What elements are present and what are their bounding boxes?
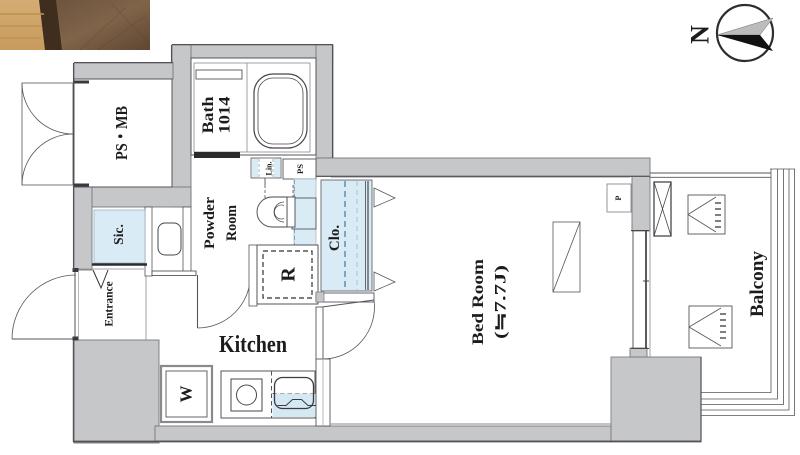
svg-text:W: W <box>177 386 196 403</box>
svg-text:Clo.: Clo. <box>327 225 343 252</box>
svg-text:PowderRoom: PowderRoom <box>202 196 240 249</box>
svg-text:N: N <box>685 25 714 44</box>
svg-text:R: R <box>278 267 300 282</box>
svg-text:Kitchen: Kitchen <box>219 332 287 358</box>
svg-text:Bath1014: Bath1014 <box>200 96 234 133</box>
svg-text:Balcony: Balcony <box>748 250 768 317</box>
svg-text:Entrance: Entrance <box>104 281 116 326</box>
svg-text:P: P <box>614 195 623 200</box>
svg-text:Bed Room(≒7.7J): Bed Room(≒7.7J) <box>470 258 510 345</box>
svg-text:Sic.: Sic. <box>111 224 126 245</box>
svg-text:PS: PS <box>295 164 305 174</box>
svg-text:Lin.: Lin. <box>265 161 274 175</box>
svg-text:PS・MB: PS・MB <box>112 106 131 160</box>
